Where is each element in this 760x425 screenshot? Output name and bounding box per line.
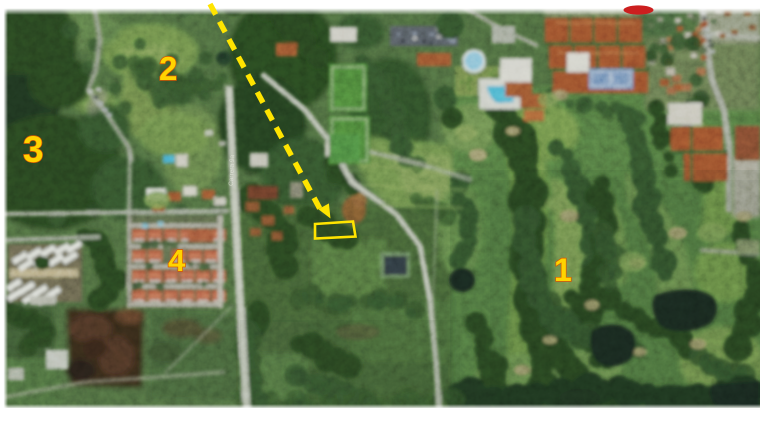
svg-text:2: 2 [159, 50, 177, 87]
svg-text:Carrera 9a: Carrera 9a [228, 154, 236, 186]
svg-text:4: 4 [168, 243, 186, 278]
svg-text:1: 1 [554, 252, 572, 288]
svg-text:3: 3 [23, 129, 44, 170]
